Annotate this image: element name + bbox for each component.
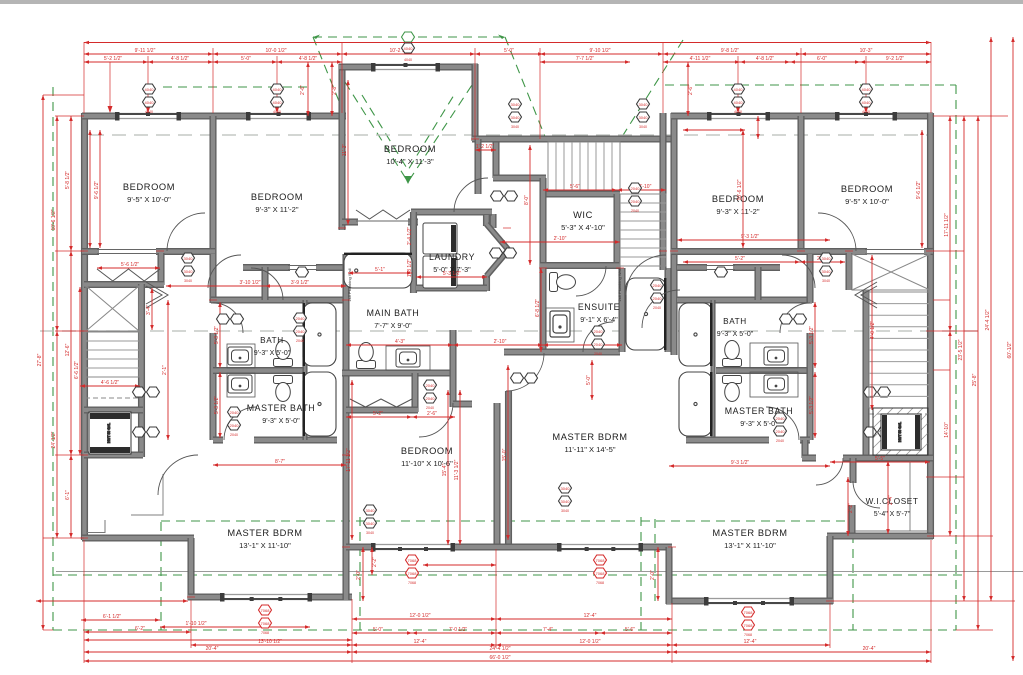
svg-text:3040: 3040	[639, 115, 649, 120]
svg-text:9'-3" X 11'-2": 9'-3" X 11'-2"	[255, 205, 298, 214]
svg-text:4040: 4040	[862, 110, 870, 114]
svg-text:3040: 3040	[822, 256, 832, 261]
svg-text:5'-6": 5'-6"	[570, 184, 580, 190]
svg-text:2'-8": 2'-8"	[332, 85, 338, 95]
svg-text:12'-0 1/2": 12'-0 1/2"	[409, 613, 430, 619]
svg-text:2040: 2040	[296, 329, 306, 334]
svg-text:17'-11 1/2": 17'-11 1/2"	[944, 213, 950, 237]
svg-text:9'-11 1/2": 9'-11 1/2"	[135, 48, 156, 54]
svg-text:LAUNDRY: LAUNDRY	[429, 252, 475, 262]
svg-text:5'-2": 5'-2"	[373, 411, 383, 417]
svg-text:24'-1/2": 24'-1/2"	[51, 431, 57, 448]
svg-text:2040: 2040	[230, 410, 240, 415]
svg-text:2040: 2040	[653, 306, 661, 310]
svg-text:15'-0": 15'-0"	[502, 448, 508, 461]
svg-text:3'-9 1/2": 3'-9 1/2"	[291, 280, 310, 286]
svg-text:2'-0": 2'-0"	[356, 570, 362, 580]
svg-text:5'-3 1/2": 5'-3 1/2"	[809, 326, 815, 345]
svg-text:2040: 2040	[776, 429, 786, 434]
svg-text:BEDROOM: BEDROOM	[384, 144, 436, 154]
svg-text:BATH: BATH	[260, 336, 284, 345]
svg-text:WIC: WIC	[573, 210, 593, 220]
svg-text:4040: 4040	[734, 110, 742, 114]
svg-text:27'-8": 27'-8"	[37, 353, 43, 366]
svg-text:1'-2 1/2": 1'-2 1/2"	[476, 144, 495, 150]
svg-text:3'-4": 3'-4"	[146, 305, 152, 315]
svg-text:3040: 3040	[561, 486, 571, 491]
svg-text:2'-4 1/2": 2'-4 1/2"	[407, 227, 413, 246]
svg-text:9'-6 1/2": 9'-6 1/2"	[916, 181, 922, 200]
svg-text:2'-0": 2'-0"	[650, 570, 656, 580]
svg-text:3040: 3040	[184, 269, 194, 274]
svg-text:9'-6 1/2": 9'-6 1/2"	[94, 181, 100, 200]
svg-text:2040: 2040	[296, 316, 306, 321]
svg-text:2040: 2040	[631, 209, 639, 213]
svg-text:4040: 4040	[734, 100, 744, 105]
svg-text:4'-11 1/2": 4'-11 1/2"	[690, 56, 711, 62]
svg-text:2040: 2040	[426, 396, 436, 401]
svg-text:9'-3" X 5'-0": 9'-3" X 5'-0"	[262, 416, 300, 425]
svg-text:4'-8 1/2": 4'-8 1/2"	[756, 56, 775, 62]
svg-text:3040: 3040	[184, 279, 192, 283]
svg-text:10'-0 1/2": 10'-0 1/2"	[265, 48, 286, 54]
svg-text:2'-10": 2'-10"	[494, 339, 507, 345]
svg-text:HWT 50 GAL: HWT 50 GAL	[107, 423, 111, 443]
svg-text:20'-4": 20'-4"	[206, 646, 219, 652]
svg-text:10'-3": 10'-3"	[860, 48, 873, 54]
svg-text:3040: 3040	[511, 125, 519, 129]
svg-text:12'-4": 12'-4"	[744, 639, 757, 645]
svg-text:5'-2": 5'-2"	[735, 256, 745, 262]
svg-text:5'-0": 5'-0"	[373, 627, 383, 633]
svg-text:13'-1" X 11'-10": 13'-1" X 11'-10"	[239, 541, 291, 550]
svg-text:7068: 7068	[596, 558, 606, 563]
svg-text:5'-0": 5'-0"	[586, 375, 592, 385]
svg-text:17'-11 1/2": 17'-11 1/2"	[346, 448, 352, 472]
svg-text:9'-5" X 10'-0": 9'-5" X 10'-0"	[127, 195, 171, 204]
svg-text:MAIN BATH: MAIN BATH	[367, 308, 420, 318]
svg-text:3040: 3040	[822, 269, 832, 274]
svg-text:7068: 7068	[261, 631, 269, 635]
svg-text:2040: 2040	[296, 339, 304, 343]
svg-text:2'-2": 2'-2"	[372, 557, 378, 567]
svg-text:BEDROOM: BEDROOM	[251, 192, 303, 202]
svg-text:10'-6 1/2": 10'-6 1/2"	[51, 209, 57, 230]
svg-text:4'-0 1/2": 4'-0 1/2"	[870, 321, 876, 340]
svg-text:2'-6": 2'-6"	[688, 85, 694, 95]
svg-text:8'-7": 8'-7"	[275, 459, 285, 465]
svg-text:3040: 3040	[366, 521, 376, 526]
svg-text:23'-5 1/2": 23'-5 1/2"	[958, 339, 964, 360]
svg-text:2040: 2040	[653, 283, 663, 288]
svg-text:5'-1": 5'-1"	[375, 267, 385, 273]
svg-text:5'-6": 5'-6"	[625, 627, 635, 633]
svg-text:2040: 2040	[776, 439, 784, 443]
svg-text:3040: 3040	[366, 508, 376, 513]
svg-text:2040: 2040	[594, 342, 604, 347]
svg-text:4040: 4040	[862, 87, 872, 92]
svg-text:7'-7 1/2": 7'-7 1/2"	[576, 56, 595, 62]
svg-text:MASTER BDRM: MASTER BDRM	[552, 432, 627, 442]
svg-text:5'-3 1/2": 5'-3 1/2"	[809, 396, 815, 415]
svg-text:5'-4" X 5'-7": 5'-4" X 5'-7"	[874, 511, 911, 518]
svg-text:5'-3 1/2": 5'-3 1/2"	[214, 396, 220, 415]
svg-text:10'-4" X 11'-3": 10'-4" X 11'-3"	[386, 157, 434, 166]
svg-text:4040: 4040	[273, 87, 283, 92]
svg-text:6'-2": 6'-2"	[135, 626, 145, 632]
svg-text:9'-3" X 11'-2": 9'-3" X 11'-2"	[716, 207, 759, 216]
svg-text:4'-3": 4'-3"	[395, 339, 405, 345]
svg-text:5'-0": 5'-0"	[241, 56, 251, 62]
svg-text:9'-3 1/2": 9'-3 1/2"	[741, 234, 760, 240]
svg-text:2040: 2040	[230, 433, 238, 437]
svg-text:7068: 7068	[408, 571, 418, 576]
svg-text:5'-3 1/2": 5'-3 1/2"	[214, 326, 220, 345]
svg-text:2040: 2040	[426, 406, 434, 410]
svg-text:4040: 4040	[145, 100, 155, 105]
svg-text:HWT 50 GAL: HWT 50 GAL	[898, 422, 902, 442]
svg-text:6'-6 1/2": 6'-6 1/2"	[74, 361, 80, 380]
svg-text:6'-1 1/2": 6'-1 1/2"	[103, 614, 122, 620]
svg-text:10'-6 1/2": 10'-6 1/2"	[737, 179, 743, 200]
svg-text:9'-1" X 6'-4": 9'-1" X 6'-4"	[580, 315, 618, 324]
svg-text:7068: 7068	[744, 610, 754, 615]
svg-text:12'-4": 12'-4"	[584, 613, 597, 619]
svg-text:BATH: BATH	[723, 317, 747, 326]
svg-text:7068: 7068	[408, 558, 418, 563]
svg-text:4040: 4040	[145, 87, 155, 92]
svg-text:3040: 3040	[561, 509, 569, 513]
svg-text:9'-8 1/2": 9'-8 1/2"	[721, 48, 740, 54]
svg-text:2'-6": 2'-6"	[300, 85, 306, 95]
svg-text:5'-3 1/2": 5'-3 1/2"	[443, 271, 462, 277]
svg-text:5'-2 1/2": 5'-2 1/2"	[104, 56, 123, 62]
svg-text:6'-1": 6'-1"	[65, 490, 71, 500]
svg-text:MASTER BDRM: MASTER BDRM	[227, 528, 302, 538]
svg-text:5'-8 1/2": 5'-8 1/2"	[65, 171, 71, 190]
svg-text:5'-0": 5'-0"	[504, 48, 514, 54]
svg-text:7068: 7068	[408, 581, 416, 585]
svg-text:4040: 4040	[273, 110, 281, 114]
svg-text:4040: 4040	[404, 58, 412, 62]
svg-text:8'-0": 8'-0"	[524, 195, 530, 205]
svg-text:5'-3" X 4'-10": 5'-3" X 4'-10"	[561, 223, 605, 232]
svg-text:2040: 2040	[594, 352, 602, 356]
svg-text:7'-7" X 9'-0": 7'-7" X 9'-0"	[374, 321, 412, 330]
svg-text:4040: 4040	[273, 100, 283, 105]
svg-text:2x6 Plumbing Wall: 2x6 Plumbing Wall	[617, 268, 622, 301]
svg-text:BEDROOM: BEDROOM	[123, 182, 175, 192]
svg-text:3040: 3040	[639, 102, 649, 107]
svg-text:3040: 3040	[184, 256, 194, 261]
svg-text:5'-6 1/2": 5'-6 1/2"	[121, 262, 140, 268]
svg-text:MASTER BATH: MASTER BATH	[247, 403, 316, 413]
svg-text:9'-3" X 5'-0": 9'-3" X 5'-0"	[717, 331, 754, 338]
svg-text:2040: 2040	[594, 329, 604, 334]
svg-text:2040: 2040	[230, 423, 240, 428]
svg-text:2040: 2040	[631, 199, 641, 204]
svg-text:11'-3 1/2": 11'-3 1/2"	[454, 459, 460, 480]
svg-text:15'-4": 15'-4"	[442, 463, 448, 476]
svg-text:13'-1" X 11'-10": 13'-1" X 11'-10"	[724, 541, 776, 550]
svg-text:6'-8 1/2": 6'-8 1/2"	[535, 299, 541, 318]
svg-text:ENSUITE: ENSUITE	[578, 302, 620, 312]
svg-text:4040: 4040	[734, 87, 744, 92]
svg-text:3040: 3040	[366, 531, 374, 535]
svg-text:2'-10": 2'-10"	[554, 236, 567, 242]
svg-text:7'-0 1/2": 7'-0 1/2"	[449, 627, 468, 633]
svg-text:11'-11" X 14'-5": 11'-11" X 14'-5"	[564, 445, 615, 454]
svg-text:24'-4 1/2": 24'-4 1/2"	[489, 646, 510, 652]
svg-text:7068: 7068	[744, 623, 754, 628]
svg-text:3040: 3040	[561, 499, 571, 504]
svg-text:3040: 3040	[511, 102, 521, 107]
svg-text:3'-10 1/2": 3'-10 1/2"	[239, 280, 260, 286]
svg-text:60'-1/2": 60'-1/2"	[1007, 341, 1013, 358]
svg-text:2040: 2040	[776, 416, 786, 421]
svg-text:6'-0": 6'-0"	[817, 56, 827, 62]
svg-text:9'-2 1/2": 9'-2 1/2"	[886, 56, 905, 62]
svg-text:BEDROOM: BEDROOM	[841, 184, 893, 194]
svg-text:2040: 2040	[426, 383, 436, 388]
svg-text:3040: 3040	[511, 115, 521, 120]
svg-text:9'-3" X 5'-0": 9'-3" X 5'-0"	[254, 350, 291, 357]
svg-text:14'-10": 14'-10"	[944, 422, 950, 438]
svg-text:25'-8": 25'-8"	[972, 373, 978, 386]
svg-text:4'-6 1/2": 4'-6 1/2"	[101, 380, 120, 386]
svg-text:12'-0 1/2": 12'-0 1/2"	[579, 639, 600, 645]
svg-text:1'-10 1/2": 1'-10 1/2"	[185, 621, 206, 627]
svg-text:7068: 7068	[596, 571, 606, 576]
svg-text:3040: 3040	[639, 125, 647, 129]
svg-text:20'-4": 20'-4"	[863, 646, 876, 652]
svg-text:2'-4": 2'-4"	[888, 495, 894, 505]
svg-text:2040: 2040	[653, 296, 663, 301]
svg-text:MASTER BDRM: MASTER BDRM	[712, 528, 787, 538]
svg-text:9'-10 1/2": 9'-10 1/2"	[589, 48, 610, 54]
svg-text:66'-0 1/2": 66'-0 1/2"	[489, 655, 510, 661]
svg-text:7068: 7068	[261, 608, 271, 613]
svg-text:3040: 3040	[822, 279, 830, 283]
svg-text:12'-6": 12'-6"	[65, 343, 71, 356]
svg-text:2040: 2040	[631, 186, 641, 191]
svg-text:7068: 7068	[261, 621, 271, 626]
svg-text:2'-2": 2'-2"	[848, 503, 854, 513]
svg-text:9'-3" X 5'-0": 9'-3" X 5'-0"	[740, 419, 778, 428]
svg-text:2'-6": 2'-6"	[427, 411, 437, 417]
svg-text:BEDROOM: BEDROOM	[401, 446, 453, 456]
svg-text:9'-3 1/2": 9'-3 1/2"	[731, 460, 750, 466]
svg-text:4040: 4040	[145, 110, 153, 114]
svg-text:7068: 7068	[744, 633, 752, 637]
svg-text:4'-8 1/2": 4'-8 1/2"	[171, 56, 190, 62]
svg-text:4040: 4040	[862, 100, 872, 105]
svg-text:12'-4": 12'-4"	[414, 639, 427, 645]
svg-text:4'-8 1/2": 4'-8 1/2"	[299, 56, 318, 62]
svg-text:2'-1": 2'-1"	[162, 365, 168, 375]
svg-text:5'-5": 5'-5"	[875, 456, 885, 462]
svg-text:11'-3": 11'-3"	[342, 144, 348, 157]
svg-text:7068: 7068	[596, 581, 604, 585]
svg-text:9'-5" X 10'-0": 9'-5" X 10'-0"	[845, 197, 889, 206]
svg-text:24'-4 1/2": 24'-4 1/2"	[985, 309, 991, 330]
svg-text:4040: 4040	[404, 46, 414, 51]
svg-text:7'-4": 7'-4"	[543, 627, 553, 633]
